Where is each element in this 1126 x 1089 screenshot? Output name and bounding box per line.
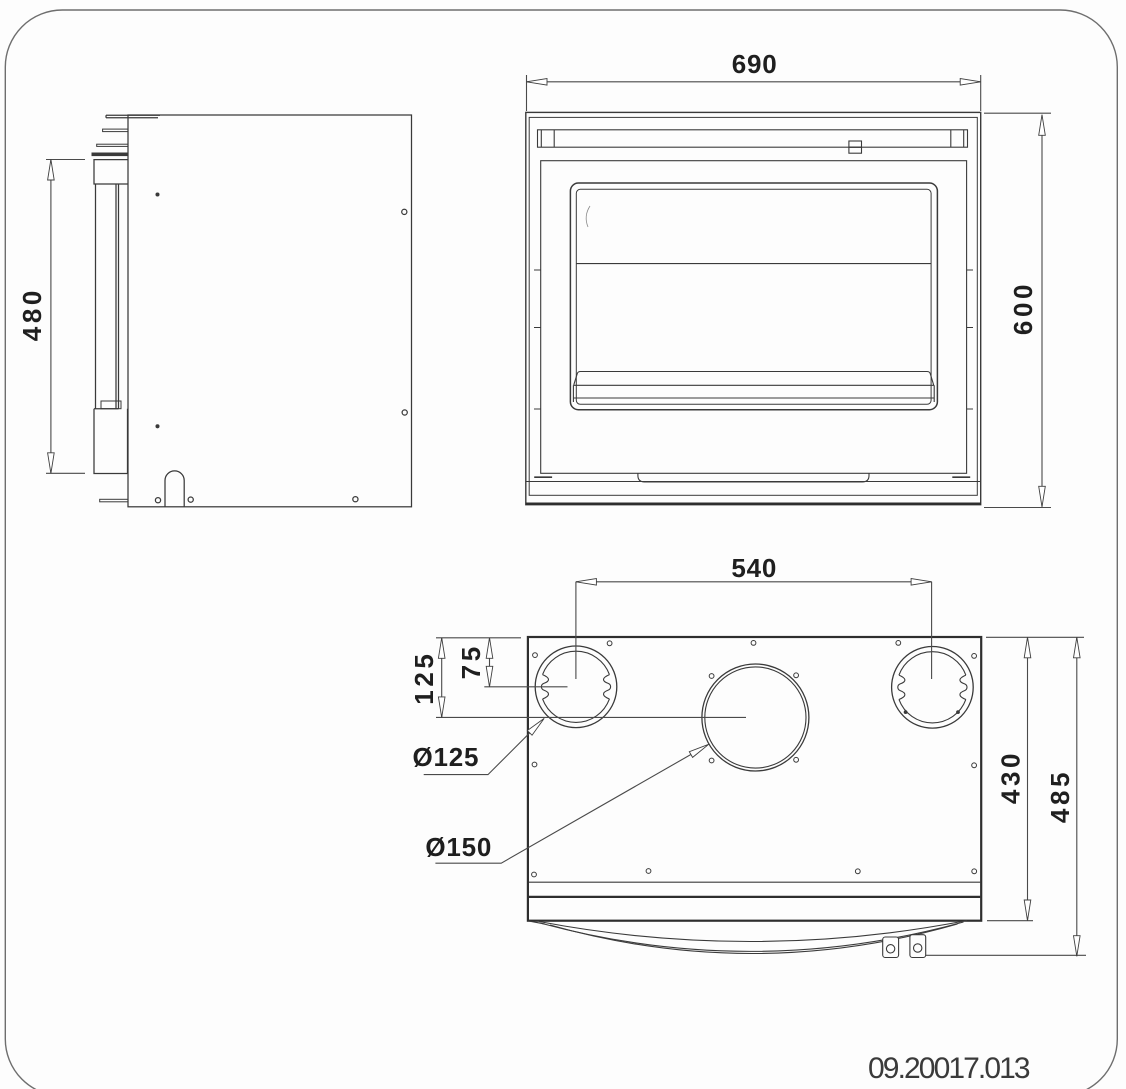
svg-text:Ø125: Ø125 (413, 742, 480, 772)
svg-text:Ø150: Ø150 (425, 832, 492, 862)
svg-text:600: 600 (1008, 281, 1038, 335)
svg-text:125: 125 (409, 651, 439, 705)
svg-text:75: 75 (456, 643, 486, 679)
svg-text:485: 485 (1045, 769, 1075, 823)
svg-text:540: 540 (731, 553, 777, 583)
svg-text:690: 690 (732, 49, 778, 79)
svg-text:430: 430 (996, 750, 1026, 804)
svg-text:480: 480 (17, 287, 47, 341)
svg-text:09.20017.013: 09.20017.013 (868, 1052, 1030, 1085)
